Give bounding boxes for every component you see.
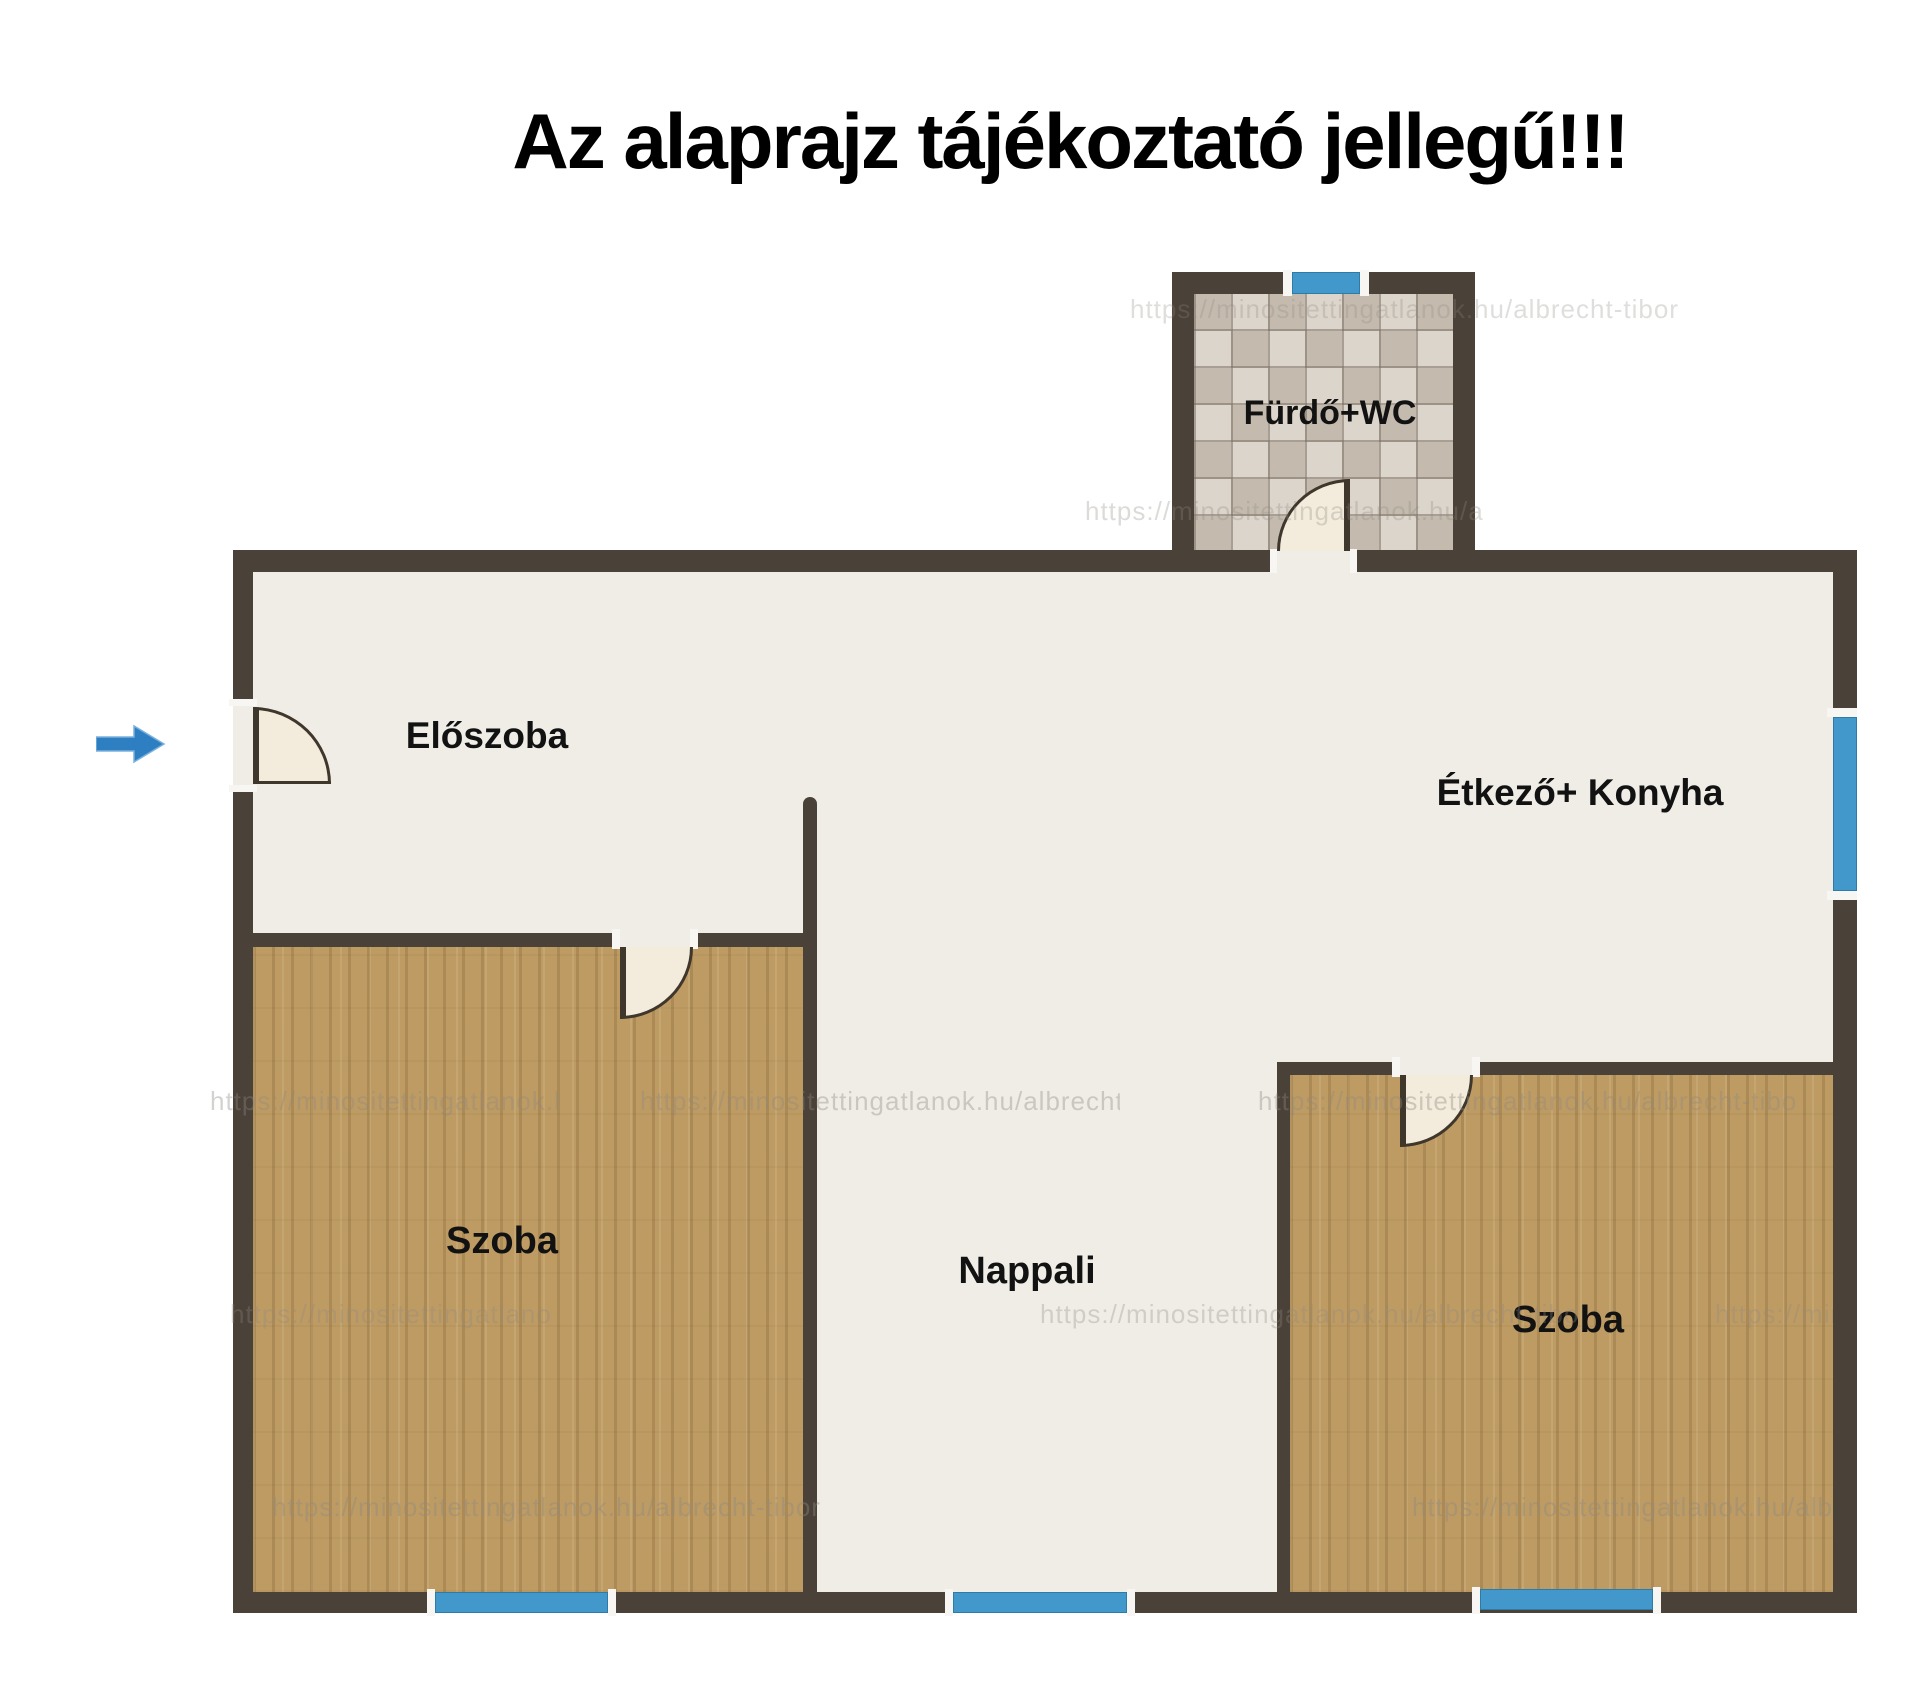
room-label-living: Nappali [902, 1250, 1152, 1293]
room-left-door-jamb-right [690, 929, 698, 949]
page-title: Az alaprajz tájékoztató jellegű!!! [280, 96, 1860, 187]
entrance-arrow-icon [96, 720, 168, 768]
partition-wall-room-right-b [1475, 1062, 1833, 1075]
kitchen-window-cap-bottom [1827, 891, 1857, 900]
room-left-window-cap-left [427, 1589, 435, 1616]
room-right-window-cap-right [1653, 1587, 1661, 1614]
room-label-room-right: Szoba [1443, 1299, 1693, 1342]
room-right-door-jamb-right [1472, 1057, 1480, 1077]
living-window-cap-left [945, 1589, 953, 1616]
entrance-opening [233, 706, 253, 786]
living-window-cap-right [1127, 1589, 1135, 1616]
partition-wall-room-right-a [1277, 1062, 1398, 1075]
room-left-floor [253, 947, 803, 1592]
partition-wall-hall-living [803, 797, 817, 1592]
kitchen-window [1833, 717, 1857, 891]
bathroom-door-opening [1277, 551, 1350, 572]
bathroom-door-jamb-right [1350, 549, 1357, 573]
room-left-window-cap-right [608, 1589, 616, 1616]
living-window [953, 1592, 1127, 1613]
room-label-room-left: Szoba [377, 1220, 627, 1263]
room-label-bathroom: Fürdő+WC [1205, 394, 1455, 433]
room-label-kitchen: Étkező+ Konyha [1430, 772, 1730, 814]
room-right-door-jamb-left [1392, 1057, 1400, 1077]
kitchen-window-cap-top [1827, 708, 1857, 717]
room-right-window-cap-left [1472, 1587, 1480, 1614]
room-left-door-jamb-left [612, 929, 620, 949]
bathroom-door-jamb-left [1270, 549, 1277, 573]
partition-wall-room-left-a [253, 933, 617, 947]
entrance-jamb-bottom [229, 785, 257, 792]
bathroom-window-cap-right [1360, 270, 1369, 296]
bathroom-window-cap-left [1283, 270, 1292, 296]
partition-wall-living-room-right [1277, 1062, 1290, 1592]
floor-plan: Az alaprajz tájékoztató jellegű!!! [0, 0, 1920, 1694]
room-left-window [435, 1592, 608, 1613]
partition-wall-room-left-b [692, 933, 817, 947]
entrance-jamb-top [229, 699, 257, 706]
room-right-window [1480, 1589, 1653, 1610]
room-label-hallway: Előszoba [337, 715, 637, 757]
bathroom-window [1292, 272, 1360, 294]
